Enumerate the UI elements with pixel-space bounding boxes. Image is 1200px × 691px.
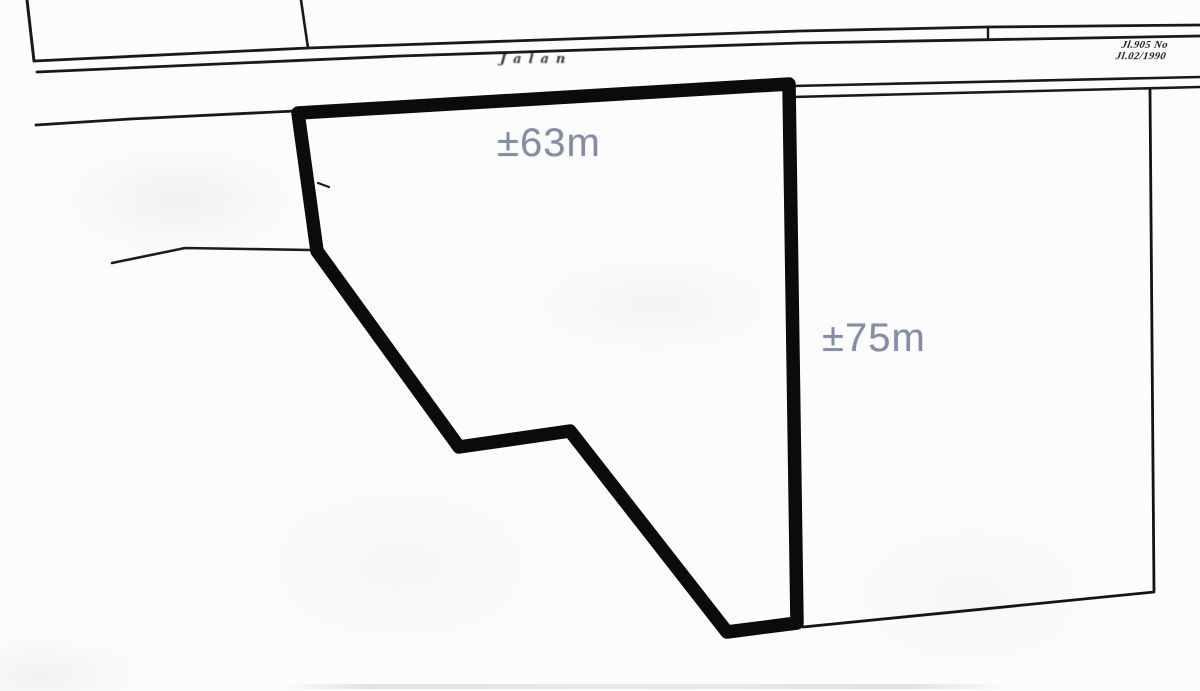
map-linework xyxy=(0,0,1200,691)
map-stamp-line-1: Jl.905 No xyxy=(1027,40,1169,51)
road-second-band-upper-line xyxy=(792,77,1200,86)
map-stamp-line-2: Jl.02/1990 xyxy=(1025,51,1167,62)
plot-boundary-outline xyxy=(298,84,797,632)
left-mid-boundary-thin-line xyxy=(112,248,310,263)
map-stamp-text: Jl.905 No Jl.02/1990 xyxy=(1025,40,1169,62)
height-annotation: ±75m xyxy=(822,316,926,361)
upper-parcel-right-edge-line xyxy=(301,0,308,48)
left-boundary-thin-line xyxy=(36,111,295,125)
road-second-band-lower-line xyxy=(792,87,1200,97)
upper-parcel-left-edge-line xyxy=(27,0,34,61)
left-edge-survey-tick xyxy=(318,183,329,187)
road-name-label: Jalan xyxy=(499,52,590,67)
width-annotation: ±63m xyxy=(497,121,601,166)
scanned-plot-map: Jalan Jl.905 No Jl.02/1990 ±63m ±75m xyxy=(0,0,1200,691)
